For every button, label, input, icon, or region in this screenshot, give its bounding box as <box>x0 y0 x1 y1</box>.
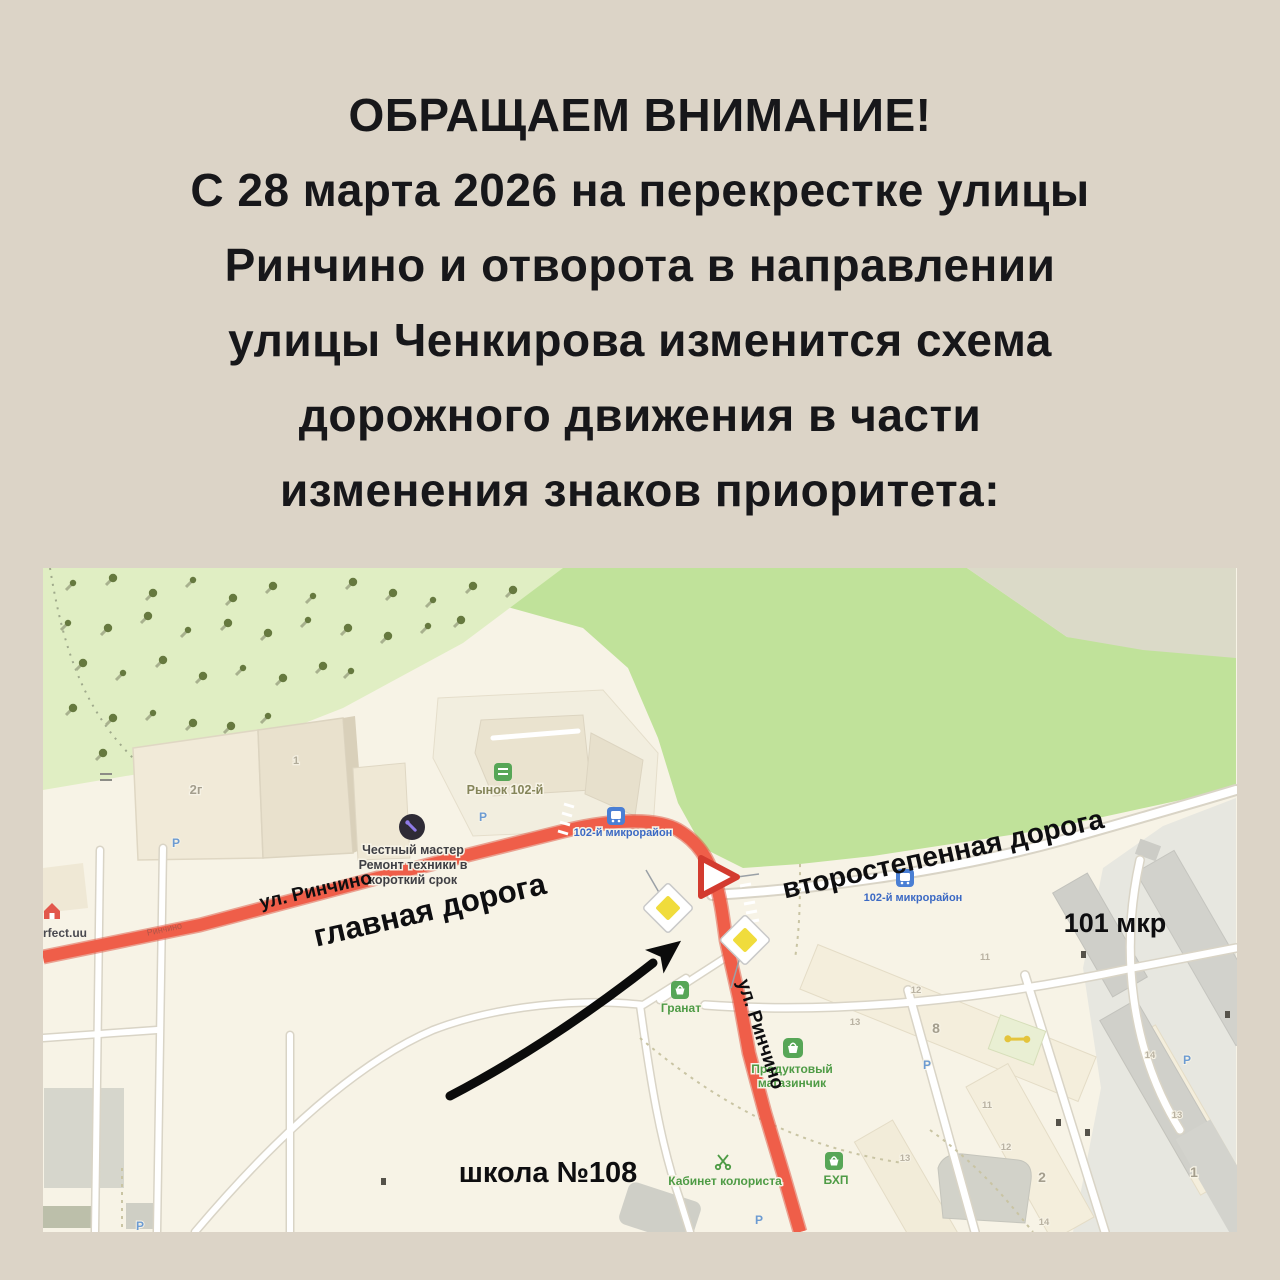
granat-shop-icon <box>671 981 689 999</box>
title-line: С 28 марта 2026 на перекрестке улицы <box>0 153 1280 228</box>
repair-shop-label: Честный мастер Ремонт техники в короткий… <box>359 843 468 887</box>
building-number: 1 <box>293 755 299 767</box>
parking-icon: P <box>479 810 487 824</box>
building <box>43 1206 95 1228</box>
building-number: 2 <box>1038 1169 1046 1185</box>
svg-text:Ремонт техники в: Ремонт техники в <box>359 858 468 872</box>
title-line: Ринчино и отворота в направлении <box>0 228 1280 303</box>
svg-text:Честный мастер: Честный мастер <box>362 843 464 857</box>
entrance-number: 12 <box>911 985 922 996</box>
parking-icon: P <box>136 1219 144 1232</box>
repair-shop-icon <box>399 814 425 840</box>
announcement-poster: ОБРАЩАЕМ ВНИМАНИЕ! С 28 марта 2026 на пе… <box>0 0 1280 1280</box>
bhp-shop-icon <box>825 1152 843 1170</box>
market-label: Рынок 102-й <box>467 783 544 797</box>
parking-icon: P <box>755 1213 763 1227</box>
building <box>258 718 353 858</box>
entrance-number: 14 <box>1145 1050 1156 1061</box>
bus-stop-label: 102-й микрорайон <box>864 892 963 904</box>
title-line: дорожного движения в части <box>0 378 1280 453</box>
website-label: perfect.uu <box>43 926 87 940</box>
parking-icon: P <box>172 836 180 850</box>
grocery-shop-icon <box>783 1038 803 1058</box>
entrance-number: 11 <box>980 952 991 963</box>
entrance-number: 13 <box>900 1153 911 1164</box>
district-label: 101 мкр <box>1064 908 1167 938</box>
entrance-number: 14 <box>1039 1217 1050 1228</box>
title-line: ОБРАЩАЕМ ВНИМАНИЕ! <box>0 78 1280 153</box>
building <box>44 1088 124 1188</box>
building-number: 2г <box>190 782 203 797</box>
parking-icon: P <box>923 1058 931 1072</box>
parking-icon: P <box>1183 1053 1191 1067</box>
entrance-number: 13 <box>850 1017 861 1028</box>
announcement-title: ОБРАЩАЕМ ВНИМАНИЕ! С 28 марта 2026 на пе… <box>0 78 1280 528</box>
market-icon <box>494 763 512 781</box>
granat-label: Гранат <box>661 1001 701 1015</box>
title-line: изменения знаков приоритета: <box>0 453 1280 528</box>
colorist-label: Кабинет колориста <box>668 1174 782 1188</box>
bus-stop-icon <box>607 807 625 825</box>
entrance-number: 11 <box>982 1100 993 1111</box>
building-number: 8 <box>932 1020 940 1036</box>
map-image: 102-й микрорайон 102-й микрорайон Рынок … <box>43 568 1237 1232</box>
school-label: школа №108 <box>459 1157 638 1189</box>
svg-text:короткий срок: короткий срок <box>369 873 458 887</box>
entrance-number: 12 <box>1001 1142 1012 1153</box>
title-line: улицы Ченкирова изменится схема <box>0 303 1280 378</box>
bhp-label: БХП <box>824 1173 849 1187</box>
bus-stop-label: 102-й микрорайон <box>574 827 673 839</box>
entrance-number: 13 <box>1172 1110 1183 1121</box>
building-number: 1 <box>1190 1164 1198 1180</box>
